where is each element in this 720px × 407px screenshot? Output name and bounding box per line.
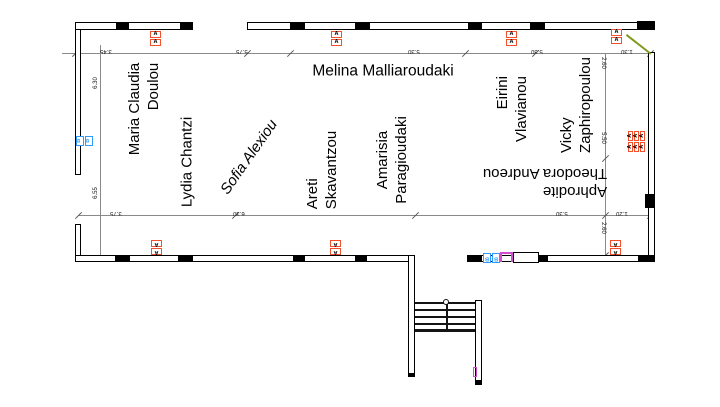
window-marker-cell: A <box>331 39 342 46</box>
wall-end-cap <box>475 380 482 384</box>
door-marker-cell: B <box>483 253 491 263</box>
name-line: Paragioudaki <box>392 116 411 204</box>
window-marker-cell: A <box>610 248 621 255</box>
window-marker: A A <box>506 31 517 46</box>
door-marker-cell: B <box>76 136 84 146</box>
window-marker-cell: A <box>610 240 621 247</box>
window-marker: A A <box>150 31 161 46</box>
dimension-label: 5.30 <box>531 48 543 54</box>
column <box>638 255 655 262</box>
wall-left-upper <box>75 29 81 175</box>
room-label-areti-skavantzou: Areti Skavantzou <box>303 131 341 209</box>
window-marker-cell: A <box>640 142 645 152</box>
wall-top-right-segment <box>247 22 655 30</box>
dimension-line-top <box>62 53 650 54</box>
dimension-label: 6.30 <box>93 77 99 89</box>
dimension-line-left <box>100 45 101 258</box>
name-line: Doulou <box>144 63 163 156</box>
wall-end-cap <box>408 373 415 377</box>
stair-direction-line <box>446 304 448 330</box>
column <box>115 255 130 262</box>
floor-plan-canvas: 3.45 5.75 5.30 5.30 1.30 3.75 6.30 5.30 … <box>0 0 720 407</box>
stair-step <box>415 309 475 311</box>
window-marker-cell: A <box>151 240 162 247</box>
column <box>116 22 129 30</box>
window-marker: A A <box>151 240 162 255</box>
dimension-label: 2.60 <box>600 222 606 234</box>
window-marker-cell: A <box>331 31 342 38</box>
name-line: Melina Malliaroudaki <box>312 62 453 81</box>
column <box>467 255 482 262</box>
name-line: Skavantzou <box>322 131 341 209</box>
stair-step <box>415 323 475 325</box>
wall-top-left-segment <box>75 22 193 30</box>
dimension-label: 1.30 <box>621 48 633 54</box>
room-label-vicky-zaphiropoulou: Vicky Zaphiropoulou <box>557 57 595 153</box>
dimension-label: 5.30 <box>556 210 568 216</box>
name-line: Vlavianou <box>512 76 531 142</box>
name-line: Maria Claudia <box>125 63 144 156</box>
window-marker-cluster: A A A A A A <box>628 131 645 152</box>
name-line: Zaphiropoulou <box>576 57 595 153</box>
dimension-label: 3.75 <box>110 210 122 216</box>
window-marker-cell: A <box>506 31 517 38</box>
name-line: Vicky <box>557 57 576 153</box>
window-marker-cell: A <box>611 29 622 36</box>
dimension-label: 5.50 <box>600 132 606 144</box>
room-label-melina-malliaroudaki: Melina Malliaroudaki <box>312 62 453 81</box>
column <box>645 194 655 208</box>
stair-step <box>415 316 475 318</box>
column <box>178 255 193 262</box>
room-label-sofia-alexiou: Sofia Alexiou <box>216 116 281 198</box>
name-line: Lydia Chantzi <box>178 117 197 207</box>
column <box>355 255 367 262</box>
name-line: Sofia Alexiou <box>216 116 281 198</box>
column <box>538 255 548 262</box>
door-marker: B B <box>76 136 93 146</box>
window-marker-cell: A <box>640 131 645 141</box>
wall-right <box>648 52 655 262</box>
door-marker-cell: B <box>85 136 93 146</box>
column <box>468 22 482 30</box>
wall-stair-left <box>408 255 415 377</box>
window-marker: A A <box>611 29 622 44</box>
room-label-maria-claudia-doulou: Maria Claudia Doulou <box>125 63 163 156</box>
window-marker-cell: A <box>611 37 622 44</box>
column <box>290 22 305 30</box>
name-line: Amarisia <box>373 116 392 204</box>
dimension-label: 6.55 <box>93 187 99 199</box>
stair-direction-end <box>441 329 453 331</box>
name-line: Aphrodite <box>483 182 607 200</box>
column <box>530 22 545 30</box>
stair-magenta-mark <box>473 367 477 377</box>
window-marker-cell: A <box>151 248 162 255</box>
room-label-eirini-vlavianou: Eirini Vlavianou <box>493 76 531 142</box>
window-marker-cell: A <box>330 248 341 255</box>
window-marker: A A <box>610 240 621 255</box>
column <box>293 255 305 262</box>
window-marker-cell: A <box>506 39 517 46</box>
column <box>180 22 193 30</box>
column <box>355 22 370 30</box>
window-marker: A A <box>330 240 341 255</box>
room-label-lydia-chantzi: Lydia Chantzi <box>178 117 197 207</box>
dimension-label: 3.45 <box>100 48 112 54</box>
dimension-label: 5.30 <box>408 48 420 54</box>
window-marker-cell: A <box>330 240 341 247</box>
window-bottom-right <box>513 252 539 263</box>
door-frame-symbol <box>500 252 513 262</box>
dimension-label: 1.20 <box>616 210 628 216</box>
name-line: Theodora Andreou <box>483 164 607 182</box>
window-marker-cell: A <box>150 31 161 38</box>
name-line: Areti <box>303 131 322 209</box>
room-label-amarisia-paragioudaki: Amarisia Paragioudaki <box>373 116 411 204</box>
window-marker-cell: A <box>150 39 161 46</box>
name-line: Eirini <box>493 76 512 142</box>
room-label-aphrodite-theodora-andreou: Aphrodite Theodora Andreou <box>483 164 607 200</box>
dimension-label: 2.60 <box>600 57 606 69</box>
door-marker-cell: B <box>492 253 500 263</box>
dimension-label: 5.75 <box>236 48 248 54</box>
dimension-label: 6.30 <box>233 210 245 216</box>
window-marker: A A <box>331 31 342 46</box>
column <box>637 21 655 30</box>
door-marker: B B <box>483 253 500 263</box>
